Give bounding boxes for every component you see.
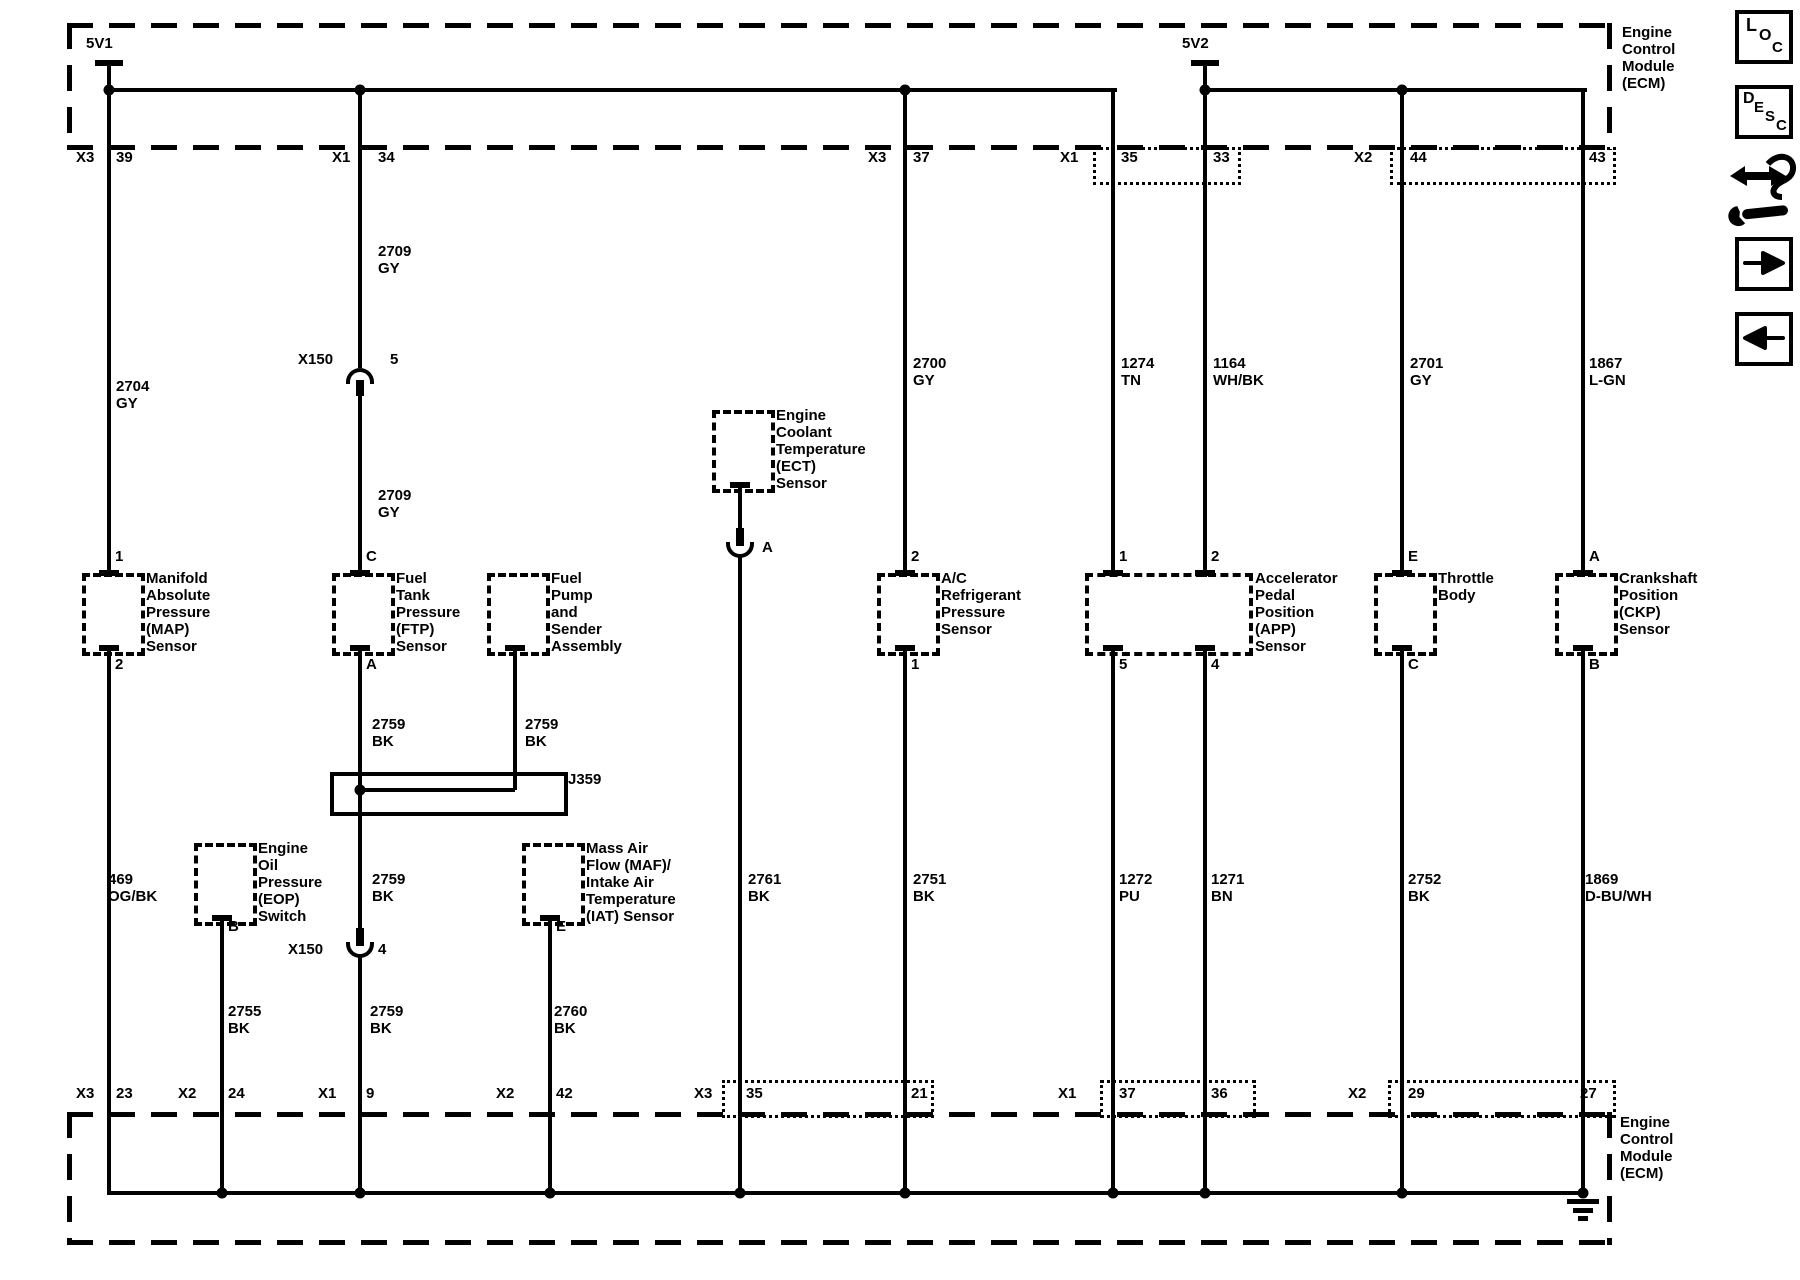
ground-icon: [1573, 1208, 1593, 1213]
harness-tool-button[interactable]: [1728, 150, 1800, 228]
wire-label: 1869 D-BU/WH: [1585, 871, 1652, 905]
wire-maf-low: [548, 916, 552, 1195]
bus-5v2: [1203, 88, 1587, 92]
junction-dot: [217, 1188, 228, 1199]
pin-tick: [1103, 570, 1123, 576]
ecm-pin: X3: [76, 150, 94, 166]
junction-dot: [355, 1188, 366, 1199]
wire-label: 1271 BN: [1211, 871, 1244, 905]
ecm-pin: 24: [228, 1086, 245, 1102]
ac-pin-top: 2: [911, 549, 919, 565]
wire-ftp-supply-b: [358, 396, 362, 577]
ecm-bottom-border-right: [1607, 1112, 1612, 1245]
ftp-pin-bottom: A: [366, 657, 377, 673]
ftp-sensor-box: [332, 573, 395, 656]
wire-label: 2700 GY: [913, 355, 946, 389]
tb-pin-bottom: C: [1408, 657, 1419, 673]
desc-letter: E: [1754, 99, 1764, 116]
wire-map-low: [107, 646, 111, 1195]
ecm-pin: X2: [178, 1086, 196, 1102]
ecm-top-border-top: [67, 23, 1612, 28]
ckp-pin-top: A: [1589, 549, 1600, 565]
ecm-pin: X1: [318, 1086, 336, 1102]
back-button[interactable]: [1735, 312, 1793, 366]
ecm-pin: 43: [1589, 150, 1606, 166]
ecm-pin: X3: [76, 1086, 94, 1102]
ect-sensor-box: [712, 410, 775, 493]
splice-j359-link: [360, 788, 515, 792]
ecm-pin: X2: [496, 1086, 514, 1102]
app-sensor-label: Accelerator Pedal Position (APP) Sensor: [1255, 570, 1338, 655]
map-sensor-label: Manifold Absolute Pressure (MAP) Sensor: [146, 570, 210, 655]
ect-sensor-label: Engine Coolant Temperature (ECT) Sensor: [776, 407, 866, 492]
wire-label: 469 OG/BK: [108, 871, 157, 905]
ecm-pin: 29: [1408, 1086, 1425, 1102]
ecm-pin: 42: [556, 1086, 573, 1102]
ftp-pin-top: C: [366, 549, 377, 565]
ckp-sensor-label: Crankshaft Position (CKP) Sensor: [1619, 570, 1697, 638]
ac-pressure-sensor-label: A/C Refrigerant Pressure Sensor: [941, 570, 1021, 638]
junction-dot: [355, 785, 366, 796]
ecm-pin: X2: [1354, 150, 1372, 166]
desc-button[interactable]: D E S C: [1735, 85, 1793, 139]
fuel-pump-label: Fuel Pump and Sender Assembly: [551, 570, 622, 655]
ecm-bottom-border-left: [67, 1112, 72, 1245]
ecm-pin: 37: [1119, 1086, 1136, 1102]
wire-label: 2752 BK: [1408, 871, 1441, 905]
inline-connector-pin: 4: [378, 942, 386, 958]
eop-switch-label: Engine Oil Pressure (EOP) Switch: [258, 840, 322, 925]
wire-ftp-supply-a: [358, 88, 362, 368]
wire-label: 2755 BK: [228, 1003, 261, 1037]
ecm-pin: 34: [378, 150, 395, 166]
app-pin-bottom-2: 4: [1211, 657, 1219, 673]
ground-icon: [1567, 1199, 1599, 1204]
junction-dot: [1108, 1188, 1119, 1199]
ac-pressure-sensor-box: [877, 573, 940, 656]
desc-letter: D: [1743, 90, 1755, 108]
wire-map-supply: [107, 62, 111, 577]
wire-label: 2761 BK: [748, 871, 781, 905]
wire-ftp-low-b: [358, 954, 362, 1195]
ect-connector-pin: A: [762, 540, 773, 556]
ecm-pin: 36: [1211, 1086, 1228, 1102]
desc-letter: S: [1765, 108, 1775, 125]
ftp-sensor-label: Fuel Tank Pressure (FTP) Sensor: [396, 570, 460, 655]
map-pin-top: 1: [115, 549, 123, 565]
pin-tick: [350, 570, 370, 576]
maf-pin-bottom: E: [556, 919, 566, 935]
junction-dot: [545, 1188, 556, 1199]
wire-label: 1164 WH/BK: [1213, 355, 1264, 389]
ecm-pin: 21: [911, 1086, 928, 1102]
app-sensor-box: [1085, 573, 1253, 656]
pin-tick: [99, 570, 119, 576]
map-pin-bottom: 2: [115, 657, 123, 673]
inline-connector-pin: 5: [390, 352, 398, 368]
ecm-pin: 23: [116, 1086, 133, 1102]
app-pin-bottom-1: 5: [1119, 657, 1127, 673]
ecm-top-label: Engine Control Module (ECM): [1622, 24, 1675, 92]
ecm-pin: X2: [1348, 1086, 1366, 1102]
inline-connector-x150-4-icon: [346, 942, 374, 958]
ac-pin-bottom: 1: [911, 657, 919, 673]
pin-tick: [350, 645, 370, 651]
loc-button[interactable]: L O C: [1735, 10, 1793, 64]
ecm-top-border-left: [67, 23, 72, 150]
ecm-bottom-border-bottom: [67, 1240, 1612, 1245]
wire-label: 2760 BK: [554, 1003, 587, 1037]
wire-label: 2704 GY: [116, 378, 149, 412]
wire-label: 2701 GY: [1410, 355, 1443, 389]
wire-eop-low: [220, 916, 224, 1195]
pin-tick: [1195, 570, 1215, 576]
supply-5v1-label: 5V1: [86, 36, 113, 52]
wire-label: 2759 BK: [370, 1003, 403, 1037]
wiring-diagram-canvas: Engine Control Module (ECM) Engine Contr…: [0, 0, 1800, 1280]
map-sensor-box: [82, 573, 145, 656]
forward-button[interactable]: [1735, 237, 1793, 291]
throttle-body-box: [1374, 573, 1437, 656]
ecm-pin: 35: [1121, 150, 1138, 166]
ecm-top-border-right: [1607, 23, 1612, 150]
loc-letter: C: [1772, 39, 1783, 56]
pin-tick: [730, 482, 750, 488]
loc-letter: O: [1759, 27, 1771, 45]
right-arrow-icon: [1739, 241, 1789, 285]
ckp-pin-bottom: B: [1589, 657, 1600, 673]
ckp-sensor-box: [1555, 573, 1618, 656]
splice-j359-box: [330, 772, 568, 816]
ecm-pin: 39: [116, 150, 133, 166]
pin-tick: [1392, 570, 1412, 576]
ecm-pin: X1: [1060, 150, 1078, 166]
junction-dot: [1578, 1188, 1589, 1199]
ecm-pin: 37: [913, 150, 930, 166]
wire-label: 2709 GY: [378, 243, 411, 277]
pin-tick: [99, 645, 119, 651]
app-pin-top-2: 2: [1211, 549, 1219, 565]
wire-ac-supply: [903, 88, 907, 577]
pin-tick: [1392, 645, 1412, 651]
wire-label: 2759 BK: [372, 716, 405, 750]
wire-label: 2759 BK: [525, 716, 558, 750]
tb-pin-top: E: [1408, 549, 1418, 565]
pin-tick: [1103, 645, 1123, 651]
junction-dot: [900, 1188, 911, 1199]
ecm-pin: X1: [332, 150, 350, 166]
ecm-pin: 44: [1410, 150, 1427, 166]
inline-connector-name: X150: [288, 942, 323, 958]
eop-switch-box: [194, 843, 257, 926]
fuel-pump-box: [487, 573, 550, 656]
pin-tick: [1573, 570, 1593, 576]
pin-tick: [1195, 645, 1215, 651]
ecm-pin: 9: [366, 1086, 374, 1102]
throttle-body-label: Throttle Body: [1438, 570, 1494, 604]
inline-connector-name: X150: [298, 352, 333, 368]
wire-label: 1274 TN: [1121, 355, 1154, 389]
wire-label: 1867 L-GN: [1589, 355, 1626, 389]
ecm-pin: 33: [1213, 150, 1230, 166]
inline-connector-x150-5-blade: [356, 380, 364, 396]
wire-label: 2751 BK: [913, 871, 946, 905]
harness-tool-icon: [1728, 150, 1800, 228]
pin-tick: [895, 645, 915, 651]
junction-dot: [735, 1188, 746, 1199]
ecm-pin: X3: [694, 1086, 712, 1102]
desc-letter: C: [1776, 117, 1787, 134]
splice-j359-label: J359: [568, 772, 601, 788]
pin-tick: [895, 570, 915, 576]
supply-5v2-label: 5V2: [1182, 36, 1209, 52]
bus-ground: [107, 1191, 1587, 1195]
eop-pin-bottom: B: [228, 919, 239, 935]
ecm-pin: X1: [1058, 1086, 1076, 1102]
wire-label: 2709 GY: [378, 487, 411, 521]
maf-iat-sensor-label: Mass Air Flow (MAF)/ Intake Air Temperat…: [586, 840, 676, 925]
ecm-pin: 27: [1580, 1086, 1597, 1102]
maf-iat-sensor-box: [522, 843, 585, 926]
wire-label: 1272 PU: [1119, 871, 1152, 905]
left-arrow-icon: [1739, 316, 1789, 360]
loc-letter: L: [1746, 15, 1757, 36]
wire-pump-low: [513, 646, 517, 790]
ect-connector-icon: [726, 542, 754, 558]
pin-tick: [1573, 645, 1593, 651]
ecm-pin: X3: [868, 150, 886, 166]
bus-5v1: [107, 88, 1117, 92]
ecm-top-border-bottom: [67, 145, 1612, 150]
junction-dot: [1200, 1188, 1211, 1199]
junction-dot: [1397, 1188, 1408, 1199]
ground-icon: [1578, 1216, 1588, 1221]
wire-label: 2759 BK: [372, 871, 405, 905]
wire-app2-supply: [1203, 62, 1207, 577]
ecm-pin: 35: [746, 1086, 763, 1102]
pin-tick: [505, 645, 525, 651]
ecm-bottom-label: Engine Control Module (ECM): [1620, 1114, 1673, 1182]
app-pin-top-1: 1: [1119, 549, 1127, 565]
